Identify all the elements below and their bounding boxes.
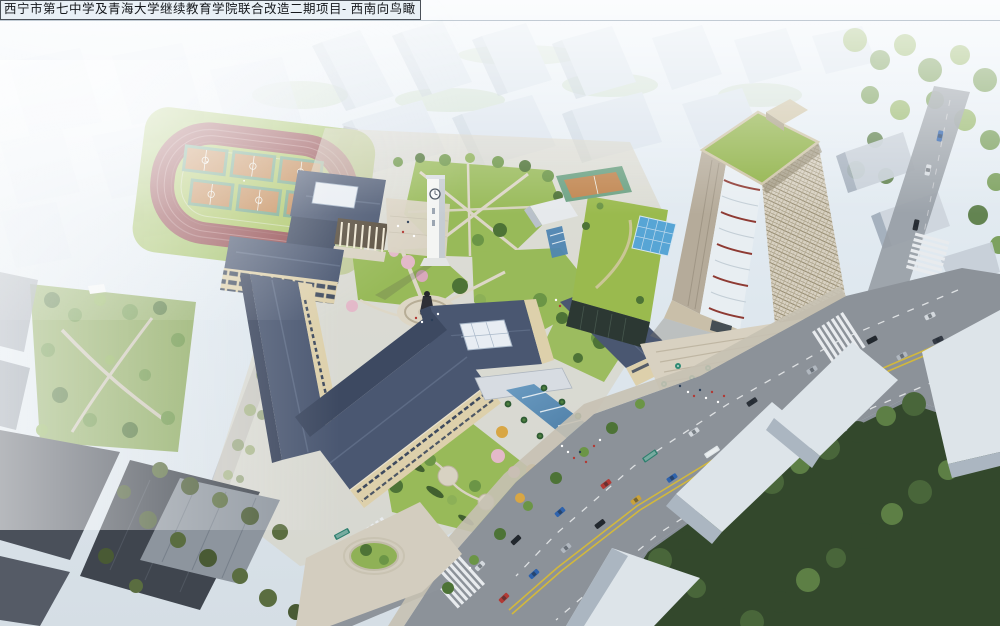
image-edge-line bbox=[0, 20, 1000, 21]
aerial-rendering bbox=[0, 0, 1000, 626]
project-title-caption: 西宁市第七中学及青海大学继续教育学院联合改造二期项目- 西南向鸟瞰 bbox=[0, 0, 421, 20]
rendering-viewport: 西宁市第七中学及青海大学继续教育学院联合改造二期项目- 西南向鸟瞰 bbox=[0, 0, 1000, 626]
